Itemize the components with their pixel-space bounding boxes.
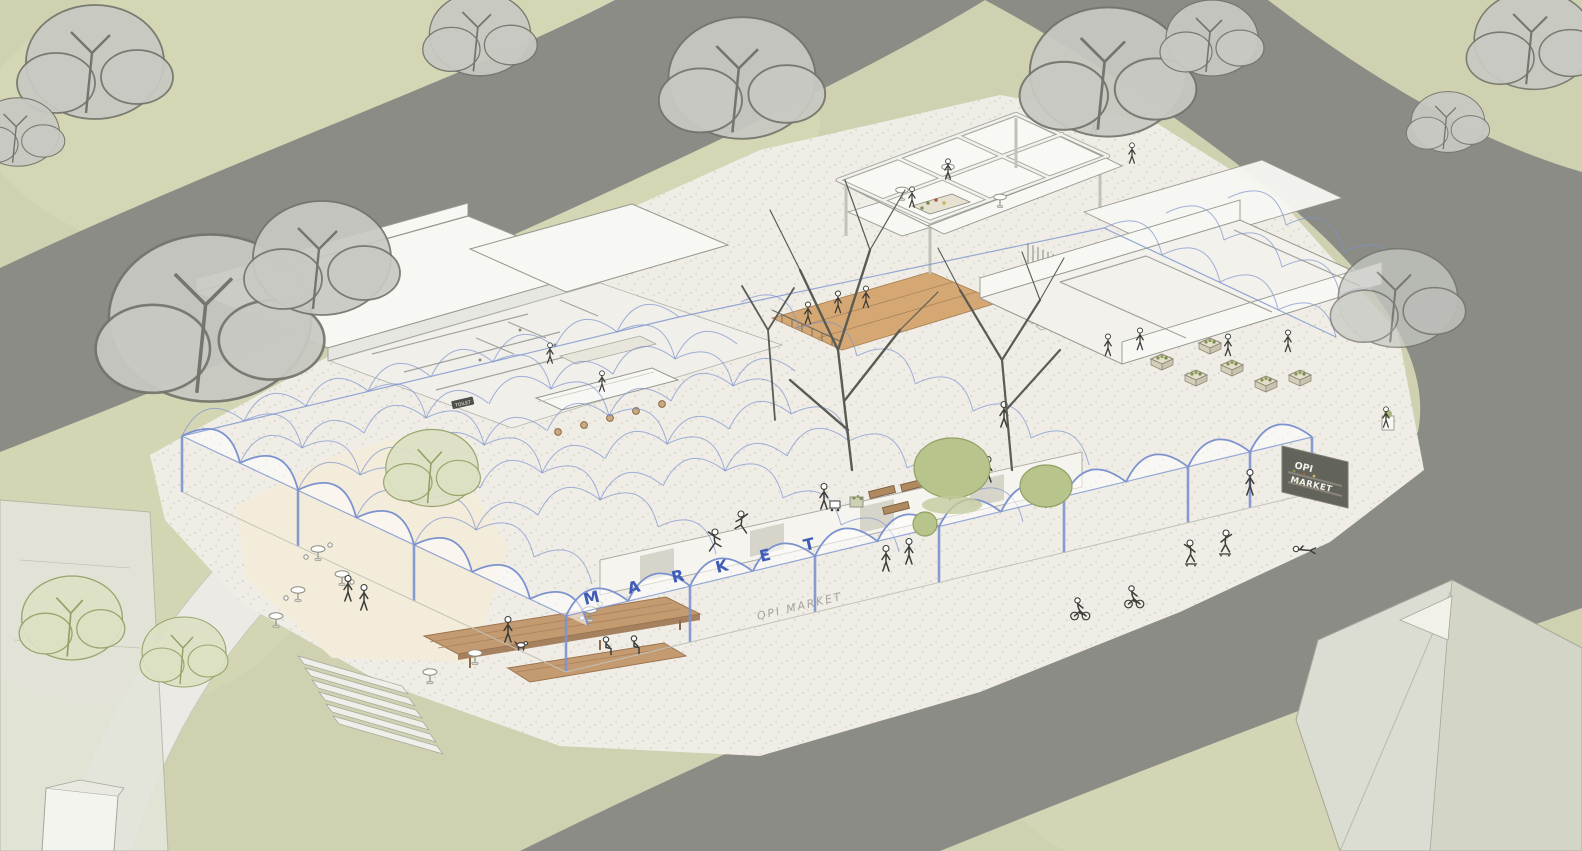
gray-tree [1466, 0, 1582, 89]
fixture-dot [519, 329, 522, 332]
illustration-stage: TOILET [0, 0, 1582, 851]
bottom-left-neighbor-plot [0, 500, 168, 851]
produce-dot [920, 206, 923, 209]
produce-dot [942, 201, 946, 205]
produce-dot [926, 201, 930, 205]
planter-box [1382, 416, 1394, 430]
plaza-tree [384, 430, 481, 507]
axonometric-market-illustration: TOILET [0, 0, 1582, 851]
fixture-dot [479, 359, 482, 362]
green-tree [19, 576, 125, 660]
produce-dot [1313, 475, 1316, 478]
green-tree [140, 617, 228, 687]
produce-dot [934, 198, 938, 202]
